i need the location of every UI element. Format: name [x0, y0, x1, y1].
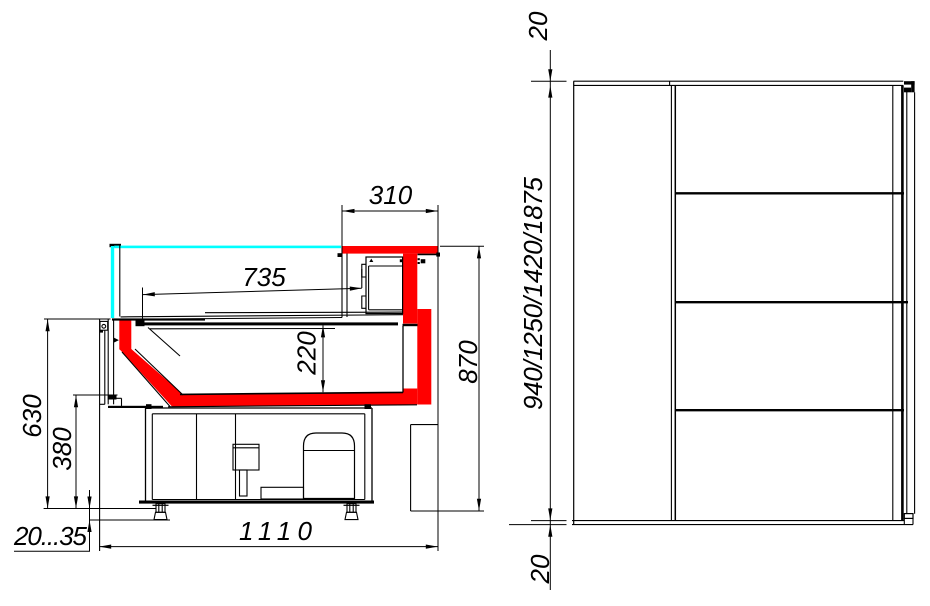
svg-text:20: 20 [525, 554, 555, 584]
svg-text:20: 20 [523, 11, 553, 41]
svg-text:20...35: 20...35 [13, 521, 88, 551]
svg-text:735: 735 [242, 262, 286, 292]
svg-text:1110: 1110 [239, 516, 313, 546]
svg-text:630: 630 [17, 394, 47, 438]
svg-text:870: 870 [453, 340, 483, 384]
svg-text:380: 380 [47, 427, 77, 471]
svg-text:310: 310 [369, 180, 413, 210]
svg-text:220: 220 [292, 331, 322, 376]
svg-text:940/1250/1420/1875: 940/1250/1420/1875 [518, 176, 548, 410]
